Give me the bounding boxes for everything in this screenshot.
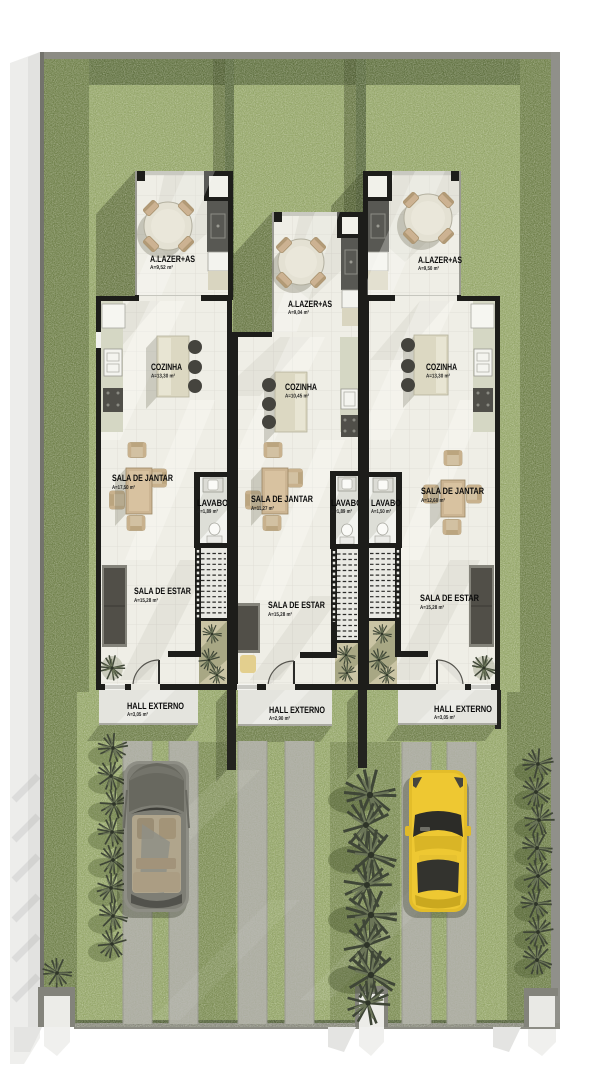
svg-text:A=9,50 m²: A=9,50 m² (418, 266, 439, 272)
svg-text:A=3,05 m²: A=3,05 m² (127, 712, 148, 718)
svg-text:A=1,89 m²: A=1,89 m² (331, 509, 352, 515)
svg-text:A.LAZER+AS: A.LAZER+AS (418, 255, 462, 265)
svg-text:LAVABO: LAVABO (197, 498, 228, 508)
svg-text:SALA DE ESTAR: SALA DE ESTAR (268, 600, 325, 610)
svg-text:SALA DE ESTAR: SALA DE ESTAR (420, 593, 479, 603)
svg-text:LAVABO: LAVABO (331, 498, 362, 508)
svg-text:A=11,27 m²: A=11,27 m² (251, 506, 274, 512)
svg-text:A=12,60 m²: A=12,60 m² (421, 498, 445, 504)
svg-text:A=2,90 m²: A=2,90 m² (269, 716, 290, 722)
svg-text:HALL EXTERNO: HALL EXTERNO (127, 701, 184, 711)
svg-text:A.LAZER+AS: A.LAZER+AS (150, 254, 195, 264)
svg-text:HALL EXTERNO: HALL EXTERNO (434, 704, 492, 714)
svg-text:A=3,05 m²: A=3,05 m² (434, 715, 455, 721)
svg-text:A=13,30 m²: A=13,30 m² (426, 374, 450, 380)
svg-text:A=1,50 m²: A=1,50 m² (371, 509, 391, 515)
svg-text:LAVABO: LAVABO (371, 498, 401, 508)
svg-text:COZINHA: COZINHA (151, 362, 182, 372)
svg-text:A=15,28 m²: A=15,28 m² (134, 598, 158, 604)
svg-text:A.LAZER+AS: A.LAZER+AS (288, 299, 332, 309)
svg-text:A=13,30 m²: A=13,30 m² (151, 374, 175, 380)
svg-text:A=15,28 m²: A=15,28 m² (420, 605, 444, 611)
svg-text:A=9,52 m²: A=9,52 m² (150, 265, 173, 271)
svg-text:HALL EXTERNO: HALL EXTERNO (269, 705, 325, 715)
svg-text:A=17,50 m²: A=17,50 m² (112, 485, 135, 491)
svg-text:A=15,28 m²: A=15,28 m² (268, 612, 292, 618)
svg-text:SALA DE JANTAR: SALA DE JANTAR (421, 486, 484, 496)
svg-text:COZINHA: COZINHA (285, 382, 317, 392)
svg-text:SALA DE JANTAR: SALA DE JANTAR (112, 473, 173, 483)
svg-text:COZINHA: COZINHA (426, 362, 457, 372)
svg-text:A=1,89 m²: A=1,89 m² (197, 509, 218, 515)
svg-text:SALA DE JANTAR: SALA DE JANTAR (251, 494, 313, 504)
svg-text:A=10,45 m²: A=10,45 m² (285, 394, 309, 400)
svg-text:SALA DE ESTAR: SALA DE ESTAR (134, 586, 191, 596)
svg-text:A=9,04 m²: A=9,04 m² (288, 310, 309, 316)
